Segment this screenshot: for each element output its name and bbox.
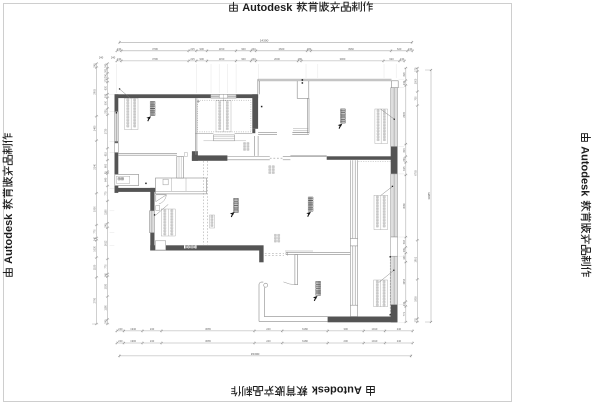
- svg-text:640: 640: [105, 177, 108, 182]
- svg-text:1900: 1900: [130, 339, 136, 343]
- svg-text:900: 900: [241, 47, 246, 51]
- svg-text:2790: 2790: [94, 297, 97, 303]
- svg-text:200: 200: [344, 339, 349, 343]
- svg-text:300: 300: [344, 327, 349, 331]
- svg-text:240: 240: [408, 47, 413, 51]
- svg-text:240: 240: [117, 47, 122, 51]
- svg-text:190: 190: [105, 93, 108, 98]
- svg-text:140: 140: [105, 273, 108, 278]
- svg-text:1180: 1180: [105, 305, 108, 311]
- svg-text:1910: 1910: [372, 327, 378, 331]
- svg-text:770: 770: [94, 229, 97, 234]
- svg-text:1910: 1910: [372, 339, 378, 343]
- svg-text:615: 615: [403, 166, 406, 171]
- svg-text:180: 180: [298, 57, 303, 61]
- svg-text:240: 240: [251, 47, 256, 51]
- svg-text:620: 620: [397, 47, 402, 51]
- svg-text:771: 771: [403, 312, 406, 317]
- svg-text:240: 240: [117, 57, 122, 61]
- svg-text:3080: 3080: [403, 203, 406, 209]
- svg-text:600: 600: [105, 163, 108, 168]
- svg-text:240: 240: [118, 339, 123, 343]
- svg-text:240: 240: [105, 319, 108, 324]
- svg-text:290: 290: [105, 73, 108, 78]
- svg-text:1150: 1150: [219, 57, 225, 61]
- svg-text:1150: 1150: [105, 209, 108, 215]
- svg-text:240: 240: [94, 63, 97, 68]
- svg-text:240: 240: [150, 339, 155, 343]
- svg-text:700: 700: [415, 96, 418, 101]
- svg-text:240: 240: [150, 327, 155, 331]
- svg-text:240: 240: [105, 223, 108, 228]
- svg-text:140: 140: [94, 236, 97, 241]
- svg-text:550: 550: [105, 100, 108, 105]
- svg-text:Autodesk: Autodesk: [242, 2, 293, 14]
- svg-text:3665: 3665: [205, 327, 211, 331]
- svg-text:2600: 2600: [279, 47, 285, 51]
- svg-text:1953: 1953: [403, 278, 406, 284]
- svg-text:2905: 2905: [94, 88, 97, 94]
- svg-text:1150: 1150: [219, 47, 225, 51]
- svg-text:Autodesk: Autodesk: [311, 384, 362, 396]
- svg-text:1030: 1030: [105, 283, 108, 289]
- svg-text:180: 180: [307, 47, 312, 51]
- svg-text:900: 900: [200, 47, 205, 51]
- svg-text:620: 620: [389, 57, 394, 61]
- svg-text:615: 615: [105, 152, 108, 157]
- svg-text:170: 170: [105, 78, 108, 83]
- svg-text:240: 240: [397, 327, 402, 331]
- svg-text:6180: 6180: [302, 339, 308, 343]
- svg-text:290: 290: [403, 157, 406, 162]
- svg-text:900: 900: [200, 57, 205, 61]
- svg-text:3960: 3960: [348, 47, 354, 51]
- svg-text:240: 240: [266, 339, 271, 343]
- svg-text:440: 440: [403, 255, 406, 260]
- svg-text:15300: 15300: [251, 352, 260, 356]
- svg-text:330: 330: [105, 109, 108, 114]
- svg-text:240: 240: [403, 80, 406, 85]
- svg-text:620: 620: [105, 85, 108, 90]
- svg-text:Autodesk: Autodesk: [579, 146, 591, 197]
- svg-text:3960: 3960: [340, 57, 346, 61]
- svg-text:1900: 1900: [94, 206, 97, 212]
- svg-text:1730: 1730: [105, 128, 108, 134]
- svg-text:1940: 1940: [130, 327, 136, 331]
- svg-text:900: 900: [241, 57, 246, 61]
- svg-text:3140: 3140: [94, 164, 97, 170]
- svg-text:240: 240: [105, 63, 108, 68]
- svg-text:1951: 1951: [415, 256, 418, 262]
- svg-text:240: 240: [118, 327, 123, 331]
- svg-text:770: 770: [105, 264, 108, 269]
- svg-text:261: 261: [105, 68, 108, 73]
- svg-text:170: 170: [415, 67, 418, 72]
- svg-text:1180: 1180: [94, 264, 97, 270]
- svg-text:240: 240: [400, 57, 405, 61]
- svg-text:503: 503: [403, 240, 406, 245]
- svg-text:1030: 1030: [94, 246, 97, 252]
- svg-text:240: 240: [99, 56, 104, 60]
- svg-text:215: 215: [190, 57, 195, 61]
- svg-text:14300: 14300: [260, 38, 269, 42]
- svg-text:215: 215: [190, 47, 195, 51]
- svg-text:6180: 6180: [302, 327, 308, 331]
- svg-text:240: 240: [266, 327, 271, 331]
- svg-text:2000: 2000: [274, 57, 280, 61]
- svg-text:3665: 3665: [205, 339, 211, 343]
- svg-text:240: 240: [111, 56, 116, 60]
- svg-text:6705: 6705: [415, 170, 418, 176]
- svg-text:3796: 3796: [152, 57, 158, 61]
- svg-text:170: 170: [415, 318, 418, 323]
- svg-text:615: 615: [403, 148, 406, 153]
- svg-text:2905: 2905: [403, 111, 406, 117]
- svg-text:290: 290: [403, 248, 406, 253]
- svg-text:240: 240: [397, 339, 402, 343]
- svg-text:620: 620: [403, 72, 406, 77]
- svg-text:3796: 3796: [152, 47, 158, 51]
- svg-text:240: 240: [251, 57, 256, 61]
- svg-text:1955: 1955: [415, 296, 418, 302]
- svg-text:240: 240: [403, 301, 406, 306]
- svg-text:11985: 11985: [427, 192, 431, 200]
- svg-text:1612: 1612: [105, 240, 108, 246]
- svg-text:1460: 1460: [94, 125, 97, 131]
- svg-text:1000: 1000: [415, 78, 418, 84]
- svg-text:775: 775: [105, 191, 108, 196]
- svg-text:Autodesk: Autodesk: [3, 213, 15, 264]
